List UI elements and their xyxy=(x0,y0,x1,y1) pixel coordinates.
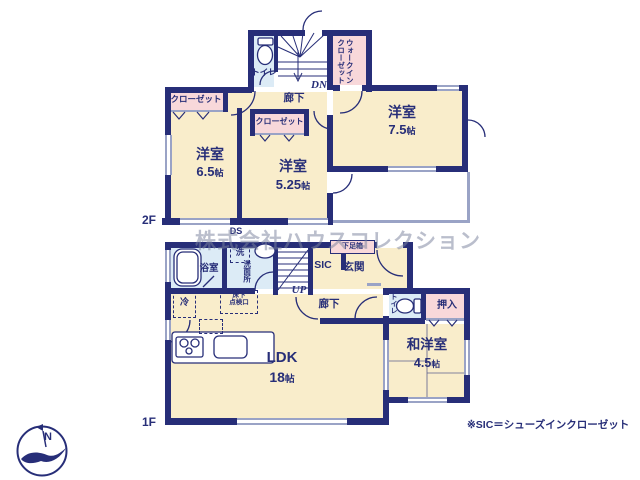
door-arc xyxy=(468,120,485,137)
wall-segment xyxy=(421,290,426,320)
label-room525-size: 5.25帖 xyxy=(262,178,324,193)
floor-label-2f: 2F xyxy=(142,214,156,228)
label-washroom: 洗面所 xyxy=(242,260,251,292)
label-room525-name: 洋室 xyxy=(262,158,324,174)
window xyxy=(237,418,347,425)
label-up: UP xyxy=(284,284,314,297)
label-room65-size: 6.5帖 xyxy=(182,165,238,180)
window xyxy=(165,250,171,282)
wall-segment xyxy=(165,340,171,425)
label-oshiire: 押入 xyxy=(432,300,462,312)
label-ldk-size: 18帖 xyxy=(252,369,312,385)
wall-segment xyxy=(165,87,252,93)
label-room65-name: 洋室 xyxy=(182,146,238,162)
compass-icon: N xyxy=(18,424,67,476)
label-fridge: 冷 xyxy=(174,297,195,307)
room-2f-toilet-floor xyxy=(254,36,274,87)
window xyxy=(464,340,470,375)
balcony-rail xyxy=(467,172,470,223)
compass-north-label: N xyxy=(44,431,52,443)
label-room75-name: 洋室 xyxy=(374,104,430,120)
sliding-door xyxy=(165,320,171,340)
wall-segment xyxy=(366,30,372,92)
label-1f-toilet: トイレ xyxy=(389,293,397,321)
floorplan-canvas: N 2F トイレ DN ウォークイン クローゼット クローゼット 廊下 クローゼ… xyxy=(0,0,640,480)
closet-door-line xyxy=(171,110,223,112)
label-washitsu-name: 和洋室 xyxy=(398,337,456,353)
label-walk-in-closet: ウォークイン クローゼット xyxy=(336,39,353,85)
label-2f-closet-left: クローゼット xyxy=(168,95,224,105)
label-1f-hallway: 廊下 xyxy=(307,298,351,310)
footnote-sic: ※SIC＝シューズインクローゼット xyxy=(467,419,629,431)
sliding-door xyxy=(383,340,389,390)
fusuma-line xyxy=(426,318,464,321)
wall-segment xyxy=(248,30,254,92)
balcony-rail xyxy=(333,220,470,223)
wall-segment xyxy=(250,109,309,114)
watermark: 株式会社ハウスコレクション xyxy=(195,225,481,255)
wall-segment xyxy=(333,85,340,91)
label-2f-toilet: トイレ xyxy=(249,68,279,78)
label-ldk-name: LDK xyxy=(252,349,312,366)
window xyxy=(165,135,172,175)
label-bath: 浴室 xyxy=(194,264,224,275)
label-dn: DN xyxy=(304,79,334,92)
wall-segment xyxy=(320,318,425,324)
label-room75-size: 7.5帖 xyxy=(374,123,430,138)
floor-label-1f: 1F xyxy=(142,416,156,430)
entrance-step-line xyxy=(367,283,381,286)
label-2f-closet-small: クローゼット xyxy=(252,117,307,126)
label-washitsu-size: 4.5帖 xyxy=(398,356,456,370)
door-arc xyxy=(333,174,352,193)
stairs-down-icon xyxy=(278,33,327,81)
wall-segment xyxy=(383,390,389,425)
window xyxy=(180,218,230,225)
window xyxy=(408,397,447,403)
window xyxy=(388,166,436,172)
label-entrance: 玄関 xyxy=(338,261,370,273)
wall-segment xyxy=(462,85,468,172)
kitchen-extra-box xyxy=(199,319,223,334)
label-2f-hallway: 廊下 xyxy=(272,92,316,104)
door-arc xyxy=(303,11,322,30)
window xyxy=(288,218,328,225)
closet-door-line xyxy=(255,133,304,135)
wall-segment xyxy=(327,115,333,172)
window xyxy=(437,85,459,91)
label-sic: SIC xyxy=(308,259,338,271)
label-inspection-hatch: 床下 点検口 xyxy=(219,292,259,307)
